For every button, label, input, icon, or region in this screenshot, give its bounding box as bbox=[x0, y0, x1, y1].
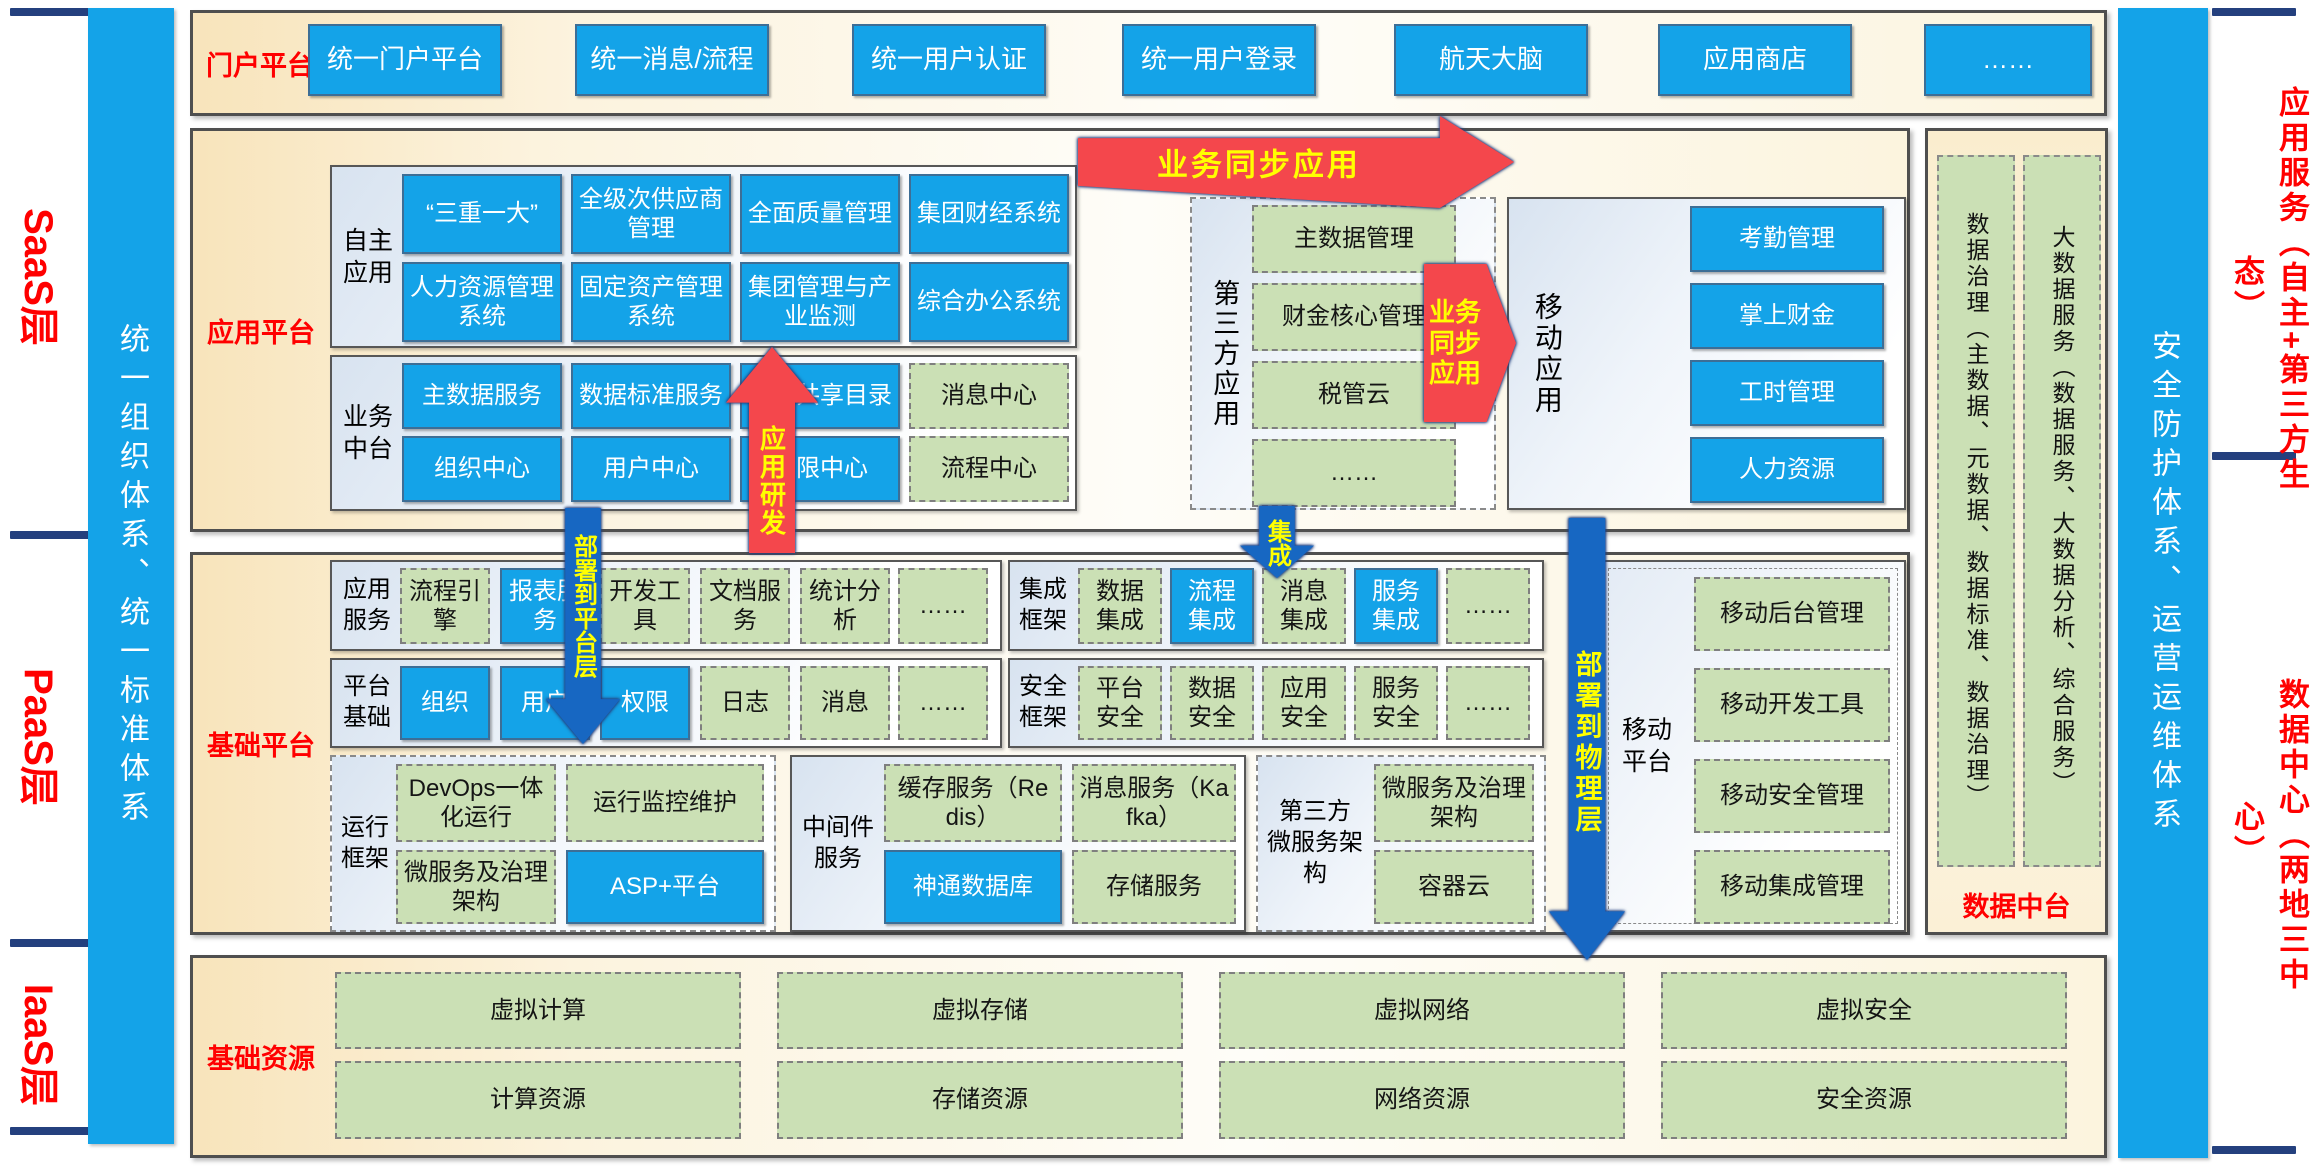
arrow-deploy-platform: 部署到平台层 bbox=[546, 508, 620, 744]
portal-item-unified-message-flow: 统一消息/流程 bbox=[575, 24, 769, 96]
self-app-group-monitoring: 集团管理与产业监测 bbox=[740, 262, 900, 342]
left-divider-saas-paas bbox=[10, 531, 90, 539]
third-party-more: …… bbox=[1252, 439, 1456, 507]
self-app-quality-mgmt: 全面质量管理 bbox=[740, 174, 900, 254]
data-governance-column: 数据治理（主数据、元数据、数据标准、数据治理） bbox=[1937, 155, 2015, 867]
mobile-apps-label: 移动应用 bbox=[1516, 197, 1578, 510]
middleware-shentong-db: 神通数据库 bbox=[884, 850, 1062, 924]
self-app-hr-system: 人力资源管理系统 bbox=[402, 262, 562, 342]
left-divider-bottom bbox=[10, 1127, 90, 1135]
res-virtual-compute: 虚拟计算 bbox=[335, 972, 741, 1049]
biz-message-center: 消息中心 bbox=[909, 363, 1069, 429]
pillar-right-text: 安全防护体系、运营运维体系 bbox=[2141, 330, 2185, 837]
middleware-redis-cache: 缓存服务（Redis） bbox=[884, 764, 1062, 842]
layer-label-iaas: IaaS层 bbox=[13, 984, 71, 1106]
base-resources-label: 基础资源 bbox=[202, 955, 320, 1158]
runtime-microservice-gov: 微服务及治理架构 bbox=[396, 850, 556, 924]
mobile-dev-tools: 移动开发工具 bbox=[1694, 668, 1890, 742]
mobile-integration-mgmt: 移动集成管理 bbox=[1694, 850, 1890, 924]
int-data: 数据集成 bbox=[1078, 568, 1162, 644]
portal-item-unified-login: 统一用户登录 bbox=[1122, 24, 1316, 96]
portal-item-unified-auth: 统一用户认证 bbox=[852, 24, 1046, 96]
middleware-kafka-message: 消息服务（Kafka） bbox=[1072, 764, 1236, 842]
right-divider-top bbox=[2212, 8, 2296, 16]
mobile-app-hr: 人力资源 bbox=[1690, 437, 1884, 503]
data-panel-footer-label: 数据中台 bbox=[1925, 882, 2108, 926]
runtime-asp-platform: ASP+平台 bbox=[566, 850, 764, 924]
architecture-diagram: SaaS层 PaaS层 IaaS层 统一组织体系、统一标准体系 安全防护体系、运… bbox=[0, 0, 2324, 1175]
layer-label-paas: PaaS层 bbox=[13, 668, 71, 806]
mobile-app-attendance: 考勤管理 bbox=[1690, 206, 1884, 272]
res-storage: 存储资源 bbox=[777, 1061, 1183, 1139]
arrow-deploy-physical: 部署到物理层 bbox=[1549, 518, 1625, 960]
side-label-app-services: 应用服务（自主+第三方生态） bbox=[2224, 72, 2314, 508]
int-more: …… bbox=[1446, 568, 1530, 644]
base-platform-label: 基础平台 bbox=[202, 552, 320, 935]
self-app-office-system: 综合办公系统 bbox=[909, 262, 1069, 342]
res-compute: 计算资源 bbox=[335, 1061, 741, 1139]
self-app-supplier-mgmt: 全级次供应商管理 bbox=[571, 174, 731, 254]
base-log: 日志 bbox=[700, 666, 790, 740]
third-ms-container-cloud: 容器云 bbox=[1374, 850, 1534, 924]
right-divider-bottom bbox=[2212, 1146, 2296, 1154]
left-divider-top bbox=[10, 8, 90, 16]
biz-process-center: 流程中心 bbox=[909, 436, 1069, 502]
third-party-apps-label: 第三方应用 bbox=[1198, 197, 1250, 510]
svc-doc-service: 文档服务 bbox=[700, 568, 790, 644]
third-party-master-data: 主数据管理 bbox=[1252, 205, 1456, 273]
mobile-backend-mgmt: 移动后台管理 bbox=[1694, 577, 1890, 651]
biz-data-standard-service: 数据标准服务 bbox=[571, 363, 731, 429]
int-process: 流程集成 bbox=[1170, 568, 1254, 644]
portal-section-label: 门户平台 bbox=[202, 10, 318, 116]
pillar-security-operations: 安全防护体系、运营运维体系 bbox=[2118, 8, 2208, 1158]
third-ms-label: 第三方 微服务架构 bbox=[1262, 755, 1368, 932]
res-virtual-storage: 虚拟存储 bbox=[777, 972, 1183, 1049]
sec-app: 应用安全 bbox=[1262, 666, 1346, 740]
security-framework-label: 安全框架 bbox=[1014, 658, 1072, 748]
portal-item-more: …… bbox=[1924, 24, 2092, 96]
third-ms-governance: 微服务及治理架构 bbox=[1374, 764, 1534, 842]
int-service: 服务集成 bbox=[1354, 568, 1438, 644]
sec-more: …… bbox=[1446, 666, 1530, 740]
layer-label-saas: SaaS层 bbox=[13, 208, 71, 346]
base-org: 组织 bbox=[400, 666, 490, 740]
base-message: 消息 bbox=[800, 666, 890, 740]
svc-more: …… bbox=[898, 568, 988, 644]
middleware-label: 中间件服务 bbox=[796, 755, 880, 932]
svc-process-engine: 流程引擎 bbox=[400, 568, 490, 644]
platform-base-label: 平台基础 bbox=[336, 658, 398, 748]
sec-data: 数据安全 bbox=[1170, 666, 1254, 740]
biz-org-center: 组织中心 bbox=[402, 436, 562, 502]
runtime-devops: DevOps一体化运行 bbox=[396, 764, 556, 842]
left-divider-paas-iaas bbox=[10, 939, 90, 947]
sec-service: 服务安全 bbox=[1354, 666, 1438, 740]
self-app-three-majors: “三重一大” bbox=[402, 174, 562, 254]
biz-user-center: 用户中心 bbox=[571, 436, 731, 502]
arrow-biz-sync-horizontal: 业务同步应用 bbox=[1078, 116, 1514, 208]
sec-platform: 平台安全 bbox=[1078, 666, 1162, 740]
self-app-finance-system: 集团财经系统 bbox=[909, 174, 1069, 254]
base-more: …… bbox=[898, 666, 988, 740]
self-apps-label: 自主应用 bbox=[336, 165, 400, 348]
portal-item-app-store: 应用商店 bbox=[1658, 24, 1852, 96]
res-security: 安全资源 bbox=[1661, 1061, 2067, 1139]
app-platform-label: 应用平台 bbox=[202, 128, 320, 532]
svc-statistics: 统计分析 bbox=[800, 568, 890, 644]
mobile-app-pocket-finance: 掌上财金 bbox=[1690, 283, 1884, 349]
res-virtual-security: 虚拟安全 bbox=[1661, 972, 2067, 1049]
int-message: 消息集成 bbox=[1262, 568, 1346, 644]
middleware-storage-service: 存储服务 bbox=[1072, 850, 1236, 924]
res-virtual-network: 虚拟网络 bbox=[1219, 972, 1625, 1049]
side-label-data-center: 数据中心（两地三中心） bbox=[2224, 652, 2314, 1018]
biz-center-label: 业务中台 bbox=[336, 355, 400, 511]
mobile-security-mgmt: 移动安全管理 bbox=[1694, 759, 1890, 833]
mobile-app-timesheet: 工时管理 bbox=[1690, 360, 1884, 426]
runtime-framework-label: 运行框架 bbox=[336, 755, 394, 932]
integration-framework-label: 集成框架 bbox=[1014, 560, 1072, 651]
portal-item-aerospace-brain: 航天大脑 bbox=[1394, 24, 1588, 96]
pillar-left-text: 统一组织体系、统一标准体系 bbox=[109, 323, 153, 830]
res-network: 网络资源 bbox=[1219, 1061, 1625, 1139]
runtime-monitoring: 运行监控维护 bbox=[566, 764, 764, 842]
pillar-unified-org-standard: 统一组织体系、统一标准体系 bbox=[88, 8, 174, 1144]
bigdata-service-column: 大数据服务（数据服务、大数据分析、综合服务） bbox=[2023, 155, 2101, 867]
portal-item-unified-portal: 统一门户平台 bbox=[308, 24, 502, 96]
arrow-biz-sync-right: 业务同步应用 bbox=[1424, 264, 1516, 422]
self-app-fixed-assets: 固定资产管理系统 bbox=[571, 262, 731, 342]
arrow-integrate: 集成 bbox=[1240, 506, 1314, 578]
arrow-app-dev-up: 应用研发 bbox=[726, 347, 818, 553]
app-services-label: 应用服务 bbox=[336, 560, 398, 651]
biz-master-data-service: 主数据服务 bbox=[402, 363, 562, 429]
